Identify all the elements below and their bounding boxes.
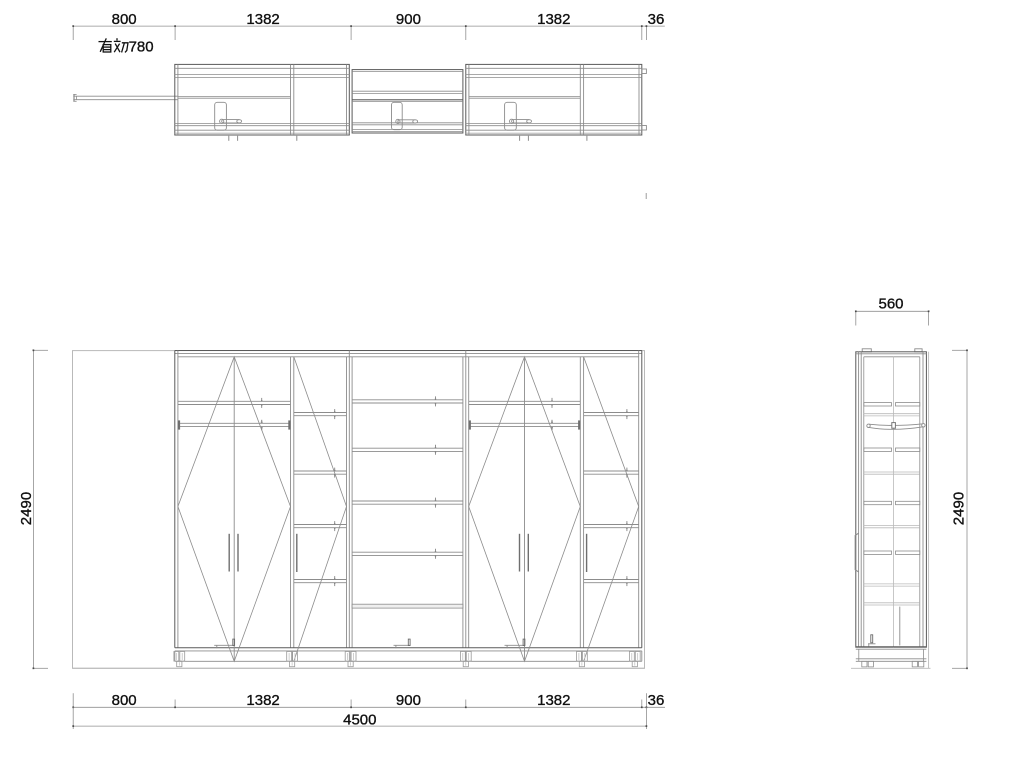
svg-text:1382: 1382 <box>246 11 279 28</box>
svg-text:2490: 2490 <box>951 492 968 525</box>
svg-text:36: 36 <box>648 11 665 28</box>
svg-text:560: 560 <box>878 295 903 312</box>
svg-text:800: 800 <box>112 11 137 28</box>
svg-text:1382: 1382 <box>537 11 570 28</box>
svg-text:2490: 2490 <box>18 492 35 525</box>
svg-text:900: 900 <box>396 692 421 709</box>
svg-text:36: 36 <box>648 692 665 709</box>
svg-text:800: 800 <box>112 692 137 709</box>
svg-text:4500: 4500 <box>343 711 376 728</box>
svg-text:900: 900 <box>396 11 421 28</box>
svg-text:1382: 1382 <box>246 692 279 709</box>
svg-text:1382: 1382 <box>537 692 570 709</box>
svg-text:780: 780 <box>129 38 154 55</box>
